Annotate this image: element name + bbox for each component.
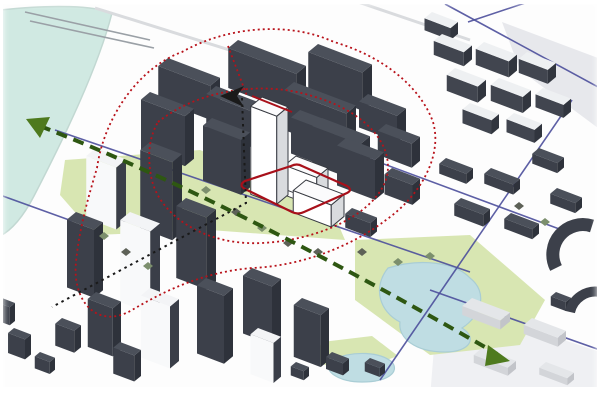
site-analysis-diagram <box>0 0 600 400</box>
building-right-face <box>170 299 179 368</box>
building-left-face <box>294 305 321 367</box>
city-building <box>0 298 15 325</box>
city-building <box>67 212 103 298</box>
city-building <box>197 278 233 364</box>
building-right-face <box>224 288 233 363</box>
landmark-site-building <box>251 97 288 204</box>
city-building <box>176 198 216 289</box>
building-left-face <box>88 299 113 357</box>
diagram-photo <box>0 0 600 400</box>
city-building <box>294 298 329 367</box>
building-left-face <box>251 106 277 204</box>
building-left-face <box>197 285 224 363</box>
city-building <box>141 288 179 368</box>
building-right-face <box>274 337 282 383</box>
city-building <box>86 148 126 229</box>
building-left-face <box>141 295 170 368</box>
building-right-face <box>94 222 103 297</box>
building-right-face <box>277 107 288 204</box>
building-right-face <box>185 109 194 166</box>
city-building <box>251 328 282 383</box>
